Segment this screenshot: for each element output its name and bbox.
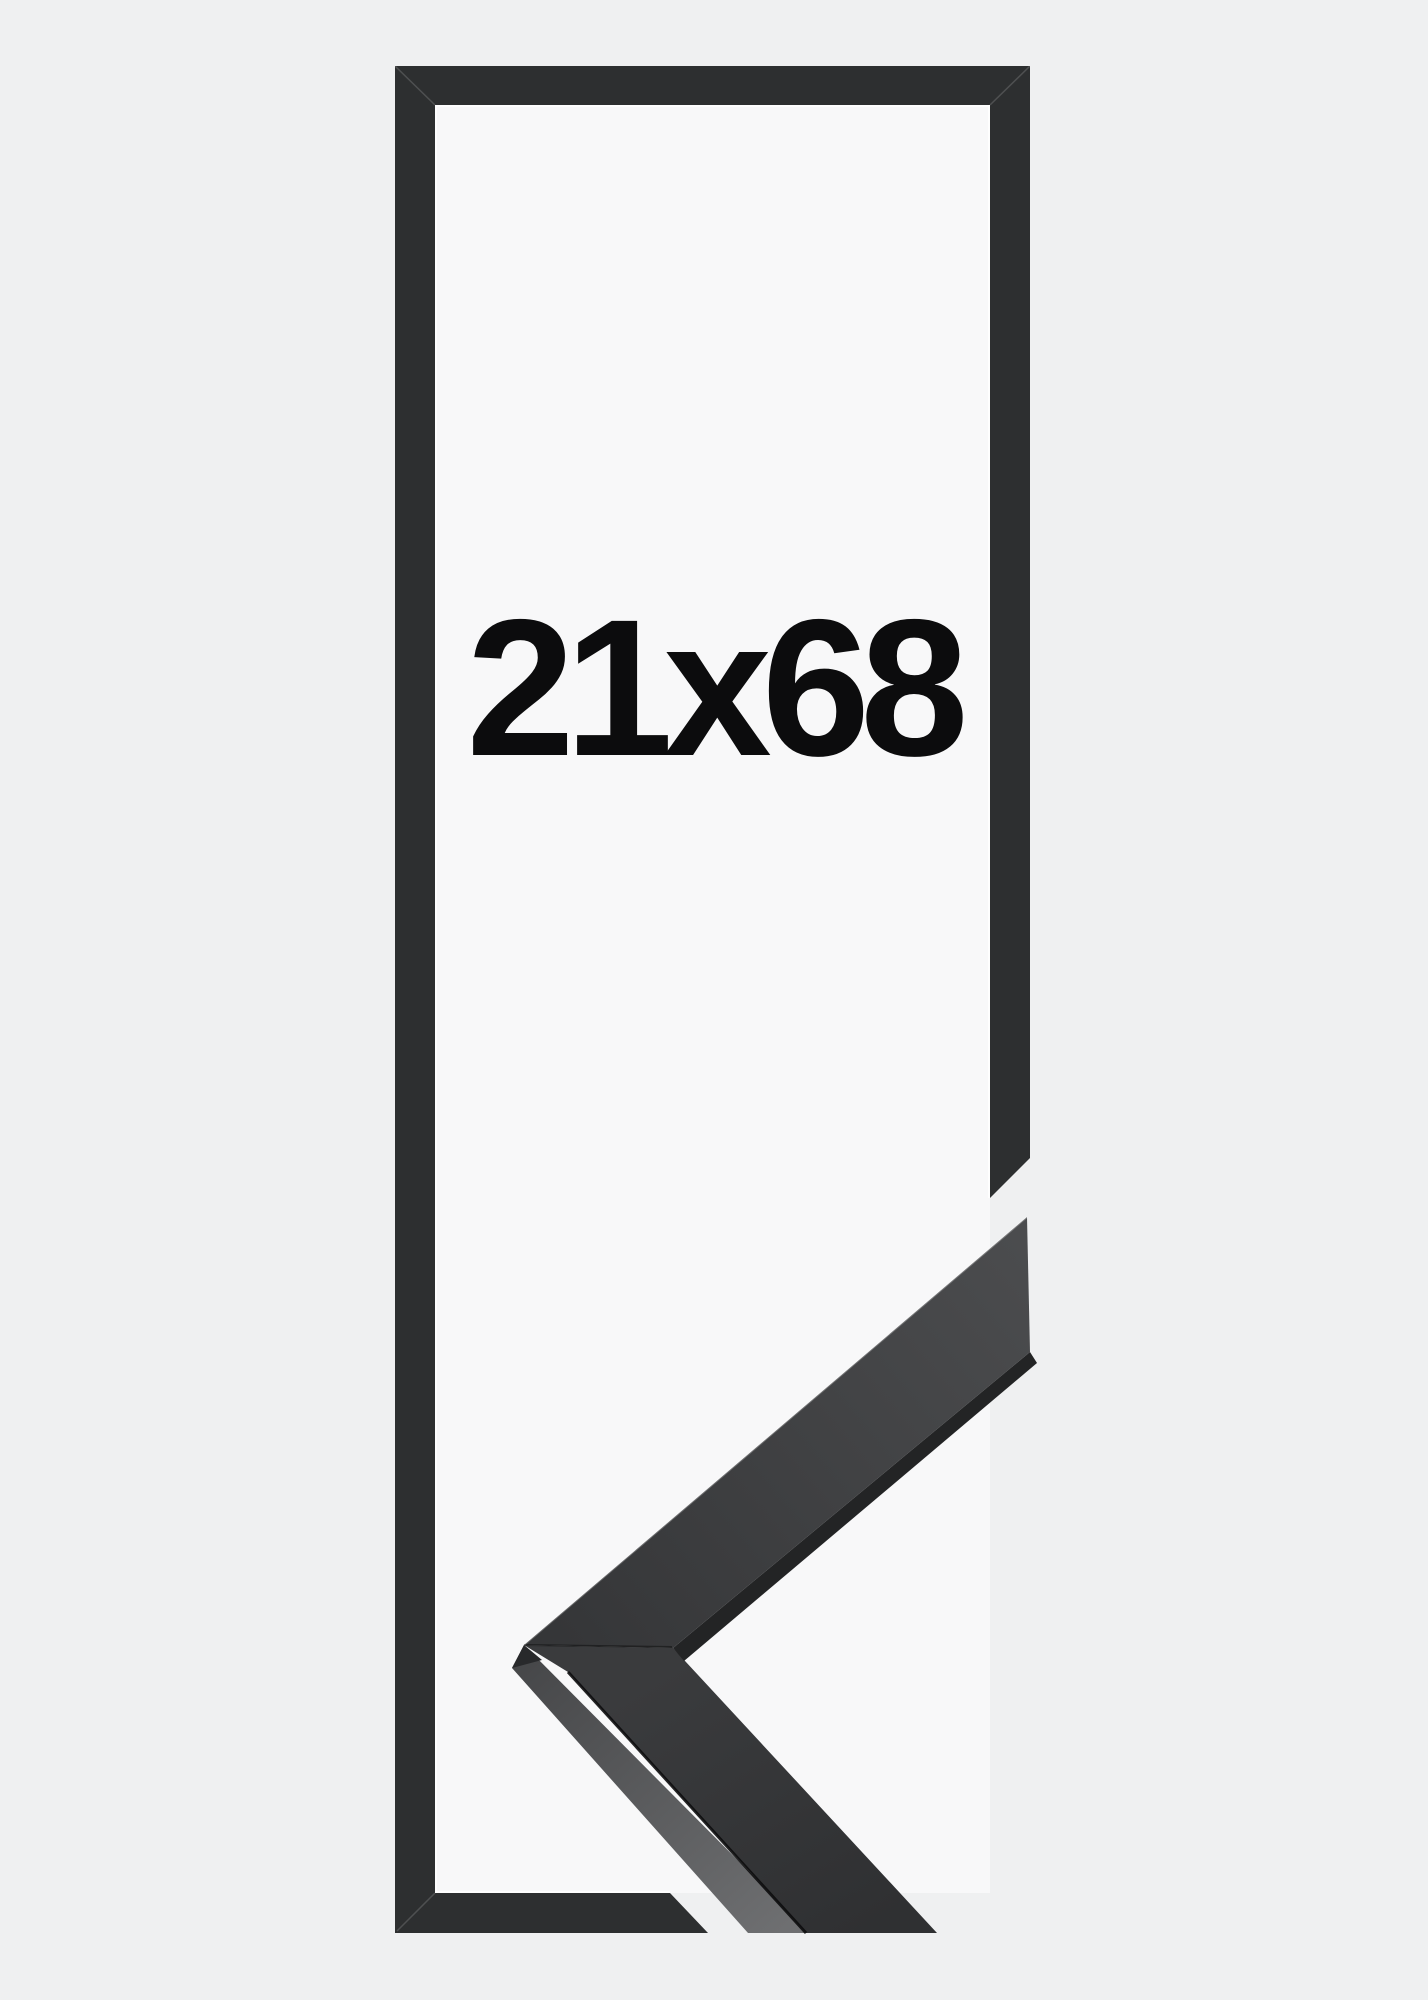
frame-right-border [990,105,1030,1198]
frame-bottom-border [395,1893,708,1933]
size-label: 21x68 [435,591,990,786]
frame-illustration [0,0,1428,2000]
frame-top-border [395,66,1030,105]
product-photo: 21x68 [0,0,1428,2000]
frame-left-border [395,66,435,1933]
